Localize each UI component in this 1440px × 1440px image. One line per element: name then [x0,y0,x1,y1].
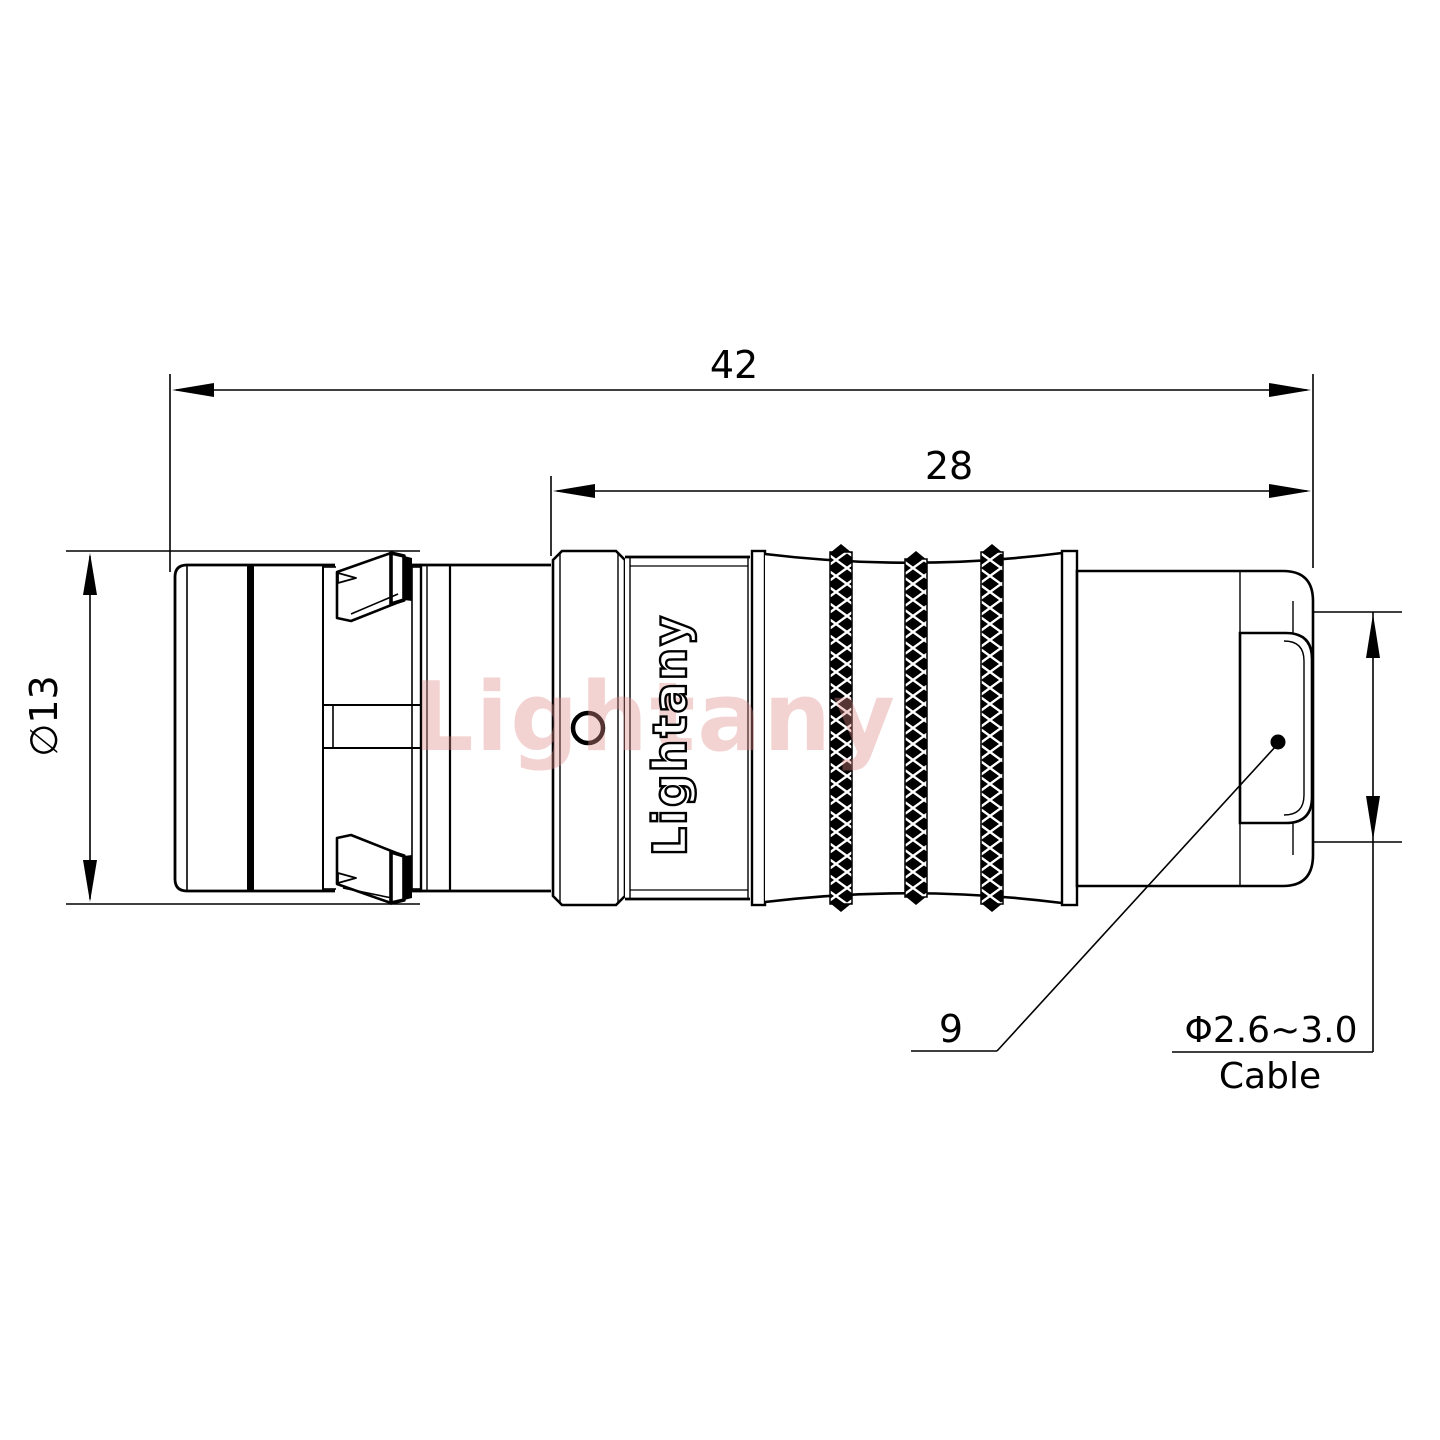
cable-word-label: Cable [1219,1056,1321,1097]
shell-size-label: 9 [939,1007,963,1051]
rear-cap [1077,571,1313,886]
solder-point-dot [1271,735,1286,750]
dimension-28-label: 28 [925,444,973,488]
cable-boot [1240,633,1312,823]
logo-text: Lightany [643,614,697,857]
connector-technical-drawing: Lightany Lightany 42 28 ∅13 Φ2.6~3.0 [0,0,1440,1440]
knurl-band-2 [905,551,927,905]
front-groove-band [247,566,254,890]
flare-right-rim [1062,551,1077,905]
cable-diameter-label: Φ2.6~3.0 [1184,1010,1357,1051]
dimension-42-label: 42 [710,343,758,387]
diameter-13-label: ∅13 [22,675,66,756]
latch-claw-bottom-shadow [404,855,412,900]
latch-claw-top-shadow [404,556,412,601]
knurl-band-3 [981,544,1003,912]
technical-drawing-page: Lightany Lightany 42 28 ∅13 Φ2.6~3.0 [0,0,1440,1440]
front-release-sleeve [175,565,423,891]
latch-claw-bottom-endface [391,852,404,903]
